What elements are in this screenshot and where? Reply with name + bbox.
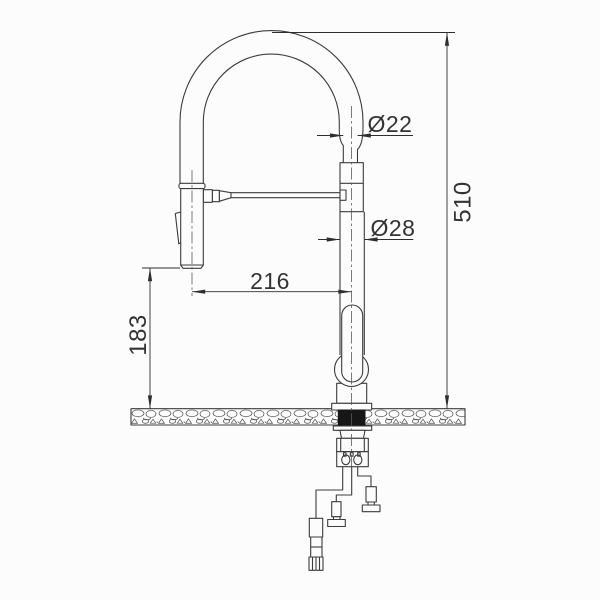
mounting-nut: [337, 438, 369, 451]
faucet-technical-drawing: 510 183 216 Ø22 Ø28: [0, 0, 600, 600]
hose-braid: [332, 502, 341, 517]
dimension-spout-diameter: Ø22: [317, 111, 413, 137]
arm-taper: [219, 191, 231, 202]
supply-hose-right: [358, 467, 380, 512]
dimension-label-d28: Ø28: [371, 215, 416, 241]
drawing-canvas: 510 183 216 Ø22 Ø28: [0, 0, 600, 600]
mounting-assembly: [333, 426, 371, 467]
mounting-shank: [340, 430, 365, 438]
hose-nut: [328, 520, 346, 527]
spout-arc: [180, 31, 363, 184]
faucet-base-assembly: [332, 305, 372, 426]
dimension-label-d22: Ø22: [368, 111, 413, 137]
support-arm: [203, 190, 346, 203]
countertop-section: [131, 409, 465, 425]
dimension-label-183: 183: [125, 314, 152, 356]
dimension-label-216: 216: [250, 268, 290, 294]
supply-hose-left: [328, 467, 352, 527]
dimension-label-510: 510: [450, 181, 477, 223]
arm-socket: [340, 190, 346, 200]
under-counter-flange: [333, 426, 371, 430]
dimension-riser-diameter: Ø28: [318, 215, 415, 241]
hose-nut: [362, 505, 380, 512]
spray-head: [175, 183, 205, 268]
hose-braid: [366, 487, 376, 502]
dimension-spout-reach: 216: [192, 268, 352, 294]
dimension-outlet-height: 183: [125, 268, 180, 409]
hose-braid: [309, 518, 322, 537]
lever-handle: [342, 305, 363, 382]
